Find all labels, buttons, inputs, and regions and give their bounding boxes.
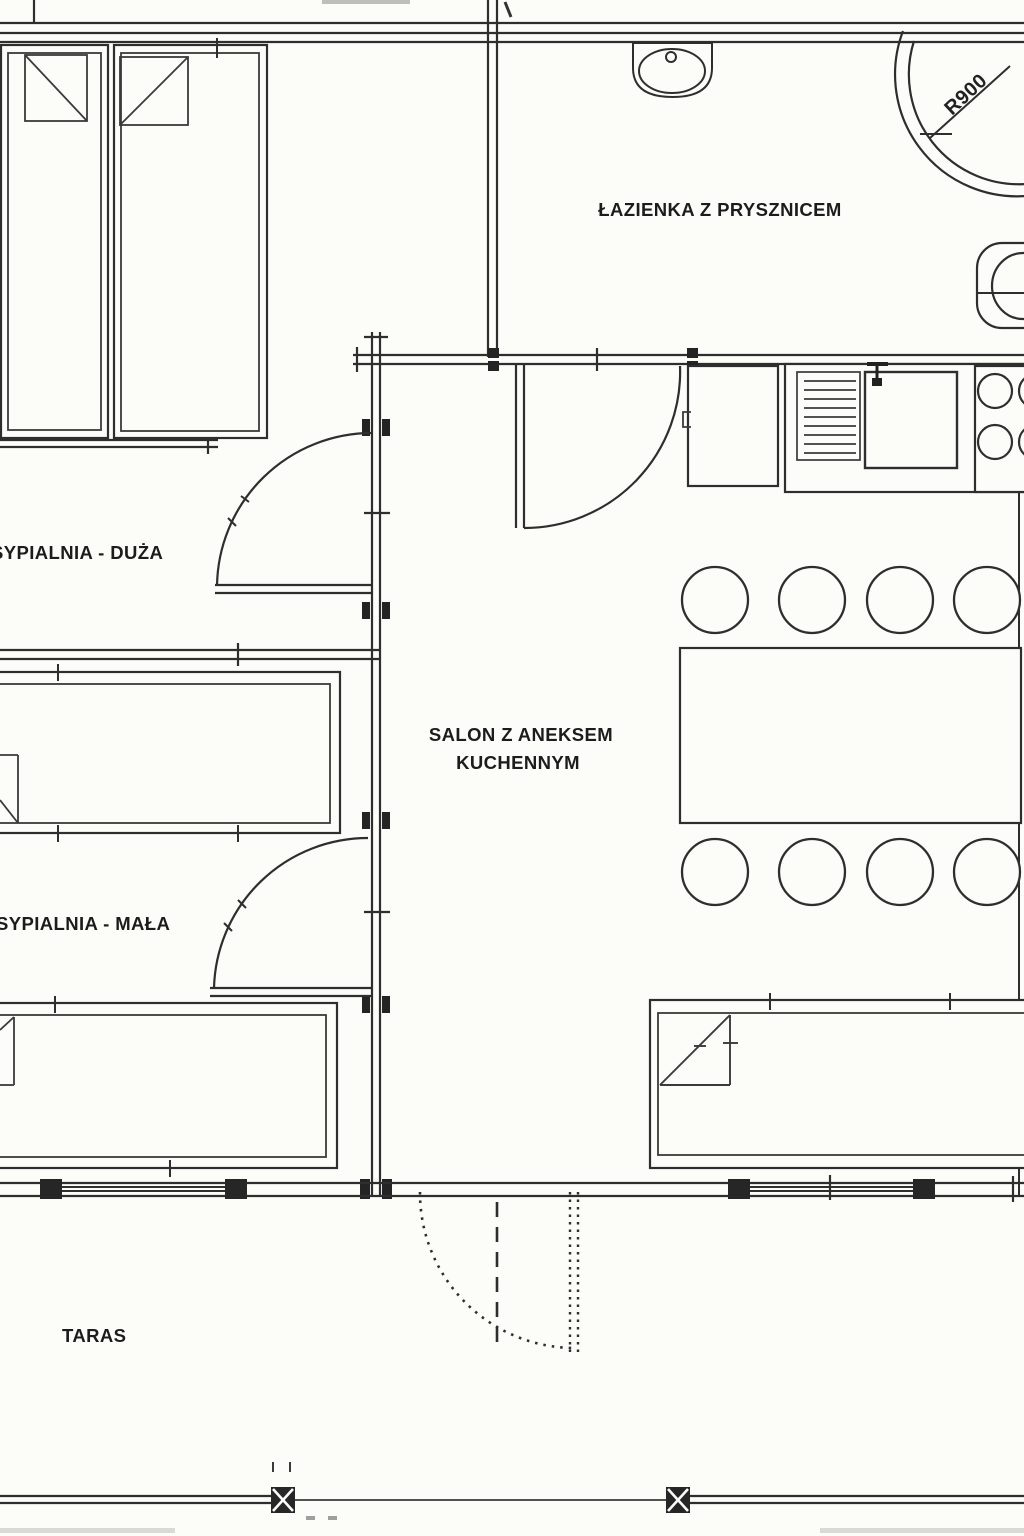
salon-divider-wall — [364, 332, 390, 1196]
bed-large-bedroom — [0, 664, 340, 842]
railing-post-icon — [666, 1487, 690, 1513]
toilet — [977, 243, 1024, 328]
terrace-railing — [0, 1462, 1024, 1513]
bed-salon — [650, 993, 1024, 1168]
shower-radius-annotation: R900 — [940, 70, 991, 120]
label-terrace: TARAS — [62, 1325, 126, 1346]
wall-post-clamps — [360, 348, 698, 1199]
label-bedroom-small: SYPIALNIA - MAŁA — [0, 913, 170, 934]
cooktop — [975, 366, 1024, 492]
floor-plan-drawing: R900 — [0, 0, 1024, 1536]
bathroom-door — [516, 364, 680, 528]
dining-table — [680, 648, 1021, 823]
floor-plan-page: R900 — [0, 0, 1024, 1536]
label-living-line2: KUCHENNYM — [456, 752, 580, 773]
railing-post-icon — [271, 1487, 295, 1513]
bottom-exterior-wall — [0, 1175, 1024, 1202]
top-exterior-wall — [0, 0, 1024, 42]
bedroom-large-door — [215, 433, 372, 593]
bed-small-bedroom — [0, 996, 337, 1177]
label-bedroom-large: SYPIALNIA - DUŻA — [0, 542, 163, 563]
bathroom-divider-wall — [488, 0, 497, 357]
terrace-door — [420, 1192, 578, 1352]
twin-bed-right — [114, 38, 267, 438]
kitchen-cabinet — [683, 366, 778, 486]
bedroom-partition-wall-lower — [0, 643, 380, 666]
label-bathroom: ŁAZIENKA Z PRYSZNICEM — [598, 199, 841, 220]
twin-bed-left — [1, 45, 108, 438]
label-living-line1: SALON Z ANEKSEM — [429, 724, 613, 745]
bedroom-small-door — [210, 838, 372, 996]
bathroom-sink — [633, 43, 712, 97]
